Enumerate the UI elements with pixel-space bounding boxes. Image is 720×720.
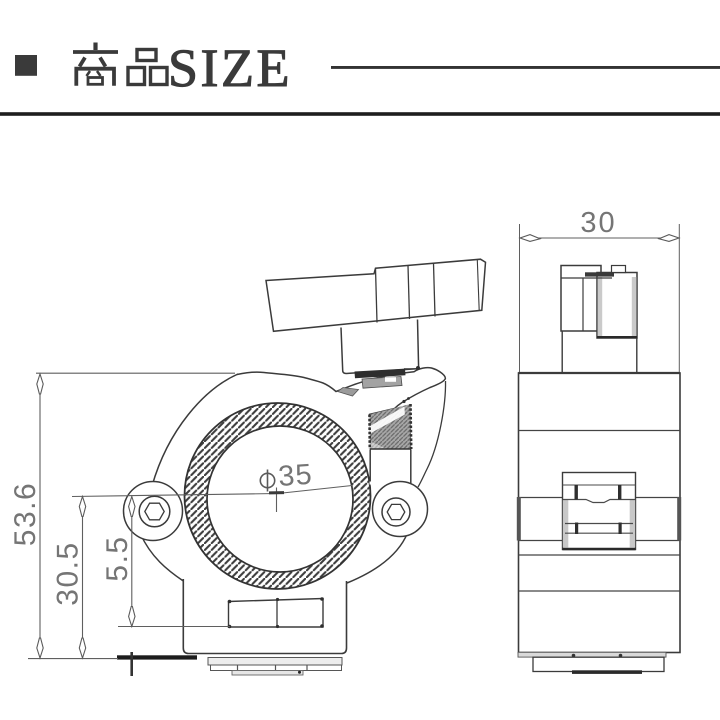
svg-text:30: 30	[580, 207, 616, 239]
svg-text:35: 35	[277, 459, 313, 493]
svg-text:53.6: 53.6	[9, 482, 42, 546]
svg-text:30.5: 30.5	[52, 541, 85, 605]
svg-text:5.5: 5.5	[101, 535, 134, 581]
svg-text:SIZE: SIZE	[168, 38, 292, 98]
